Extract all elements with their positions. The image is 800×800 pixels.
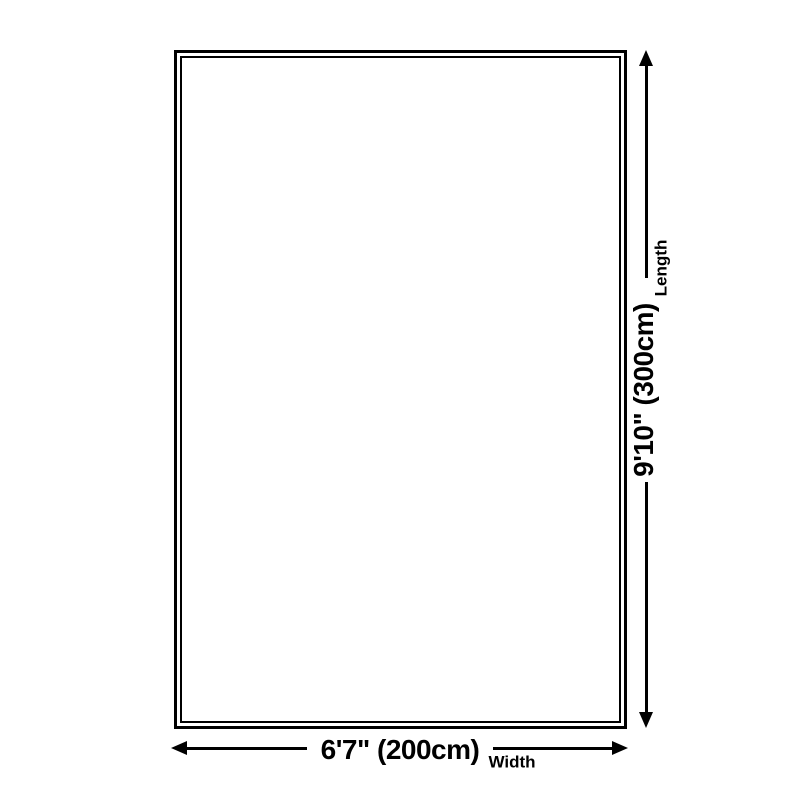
length-dimension-line-top bbox=[645, 62, 648, 278]
rug-outline bbox=[174, 50, 627, 729]
arrow-down-icon bbox=[639, 712, 653, 728]
rug-outline-inner-border bbox=[180, 56, 621, 723]
width-dimension-line-right bbox=[493, 747, 615, 750]
width-dimension-label: Width bbox=[488, 754, 535, 771]
length-dimension-line-bottom bbox=[645, 482, 648, 715]
width-dimension-value: 6'7" (200cm) bbox=[321, 736, 480, 764]
product-size-diagram: Length 9'10" (300cm) 6'7" (200cm) Width bbox=[0, 0, 800, 800]
length-dimension-label: Length bbox=[653, 240, 670, 297]
arrow-right-icon bbox=[612, 741, 628, 755]
width-dimension-line-left bbox=[184, 747, 307, 750]
length-dimension-value: 9'10" (300cm) bbox=[630, 303, 658, 477]
